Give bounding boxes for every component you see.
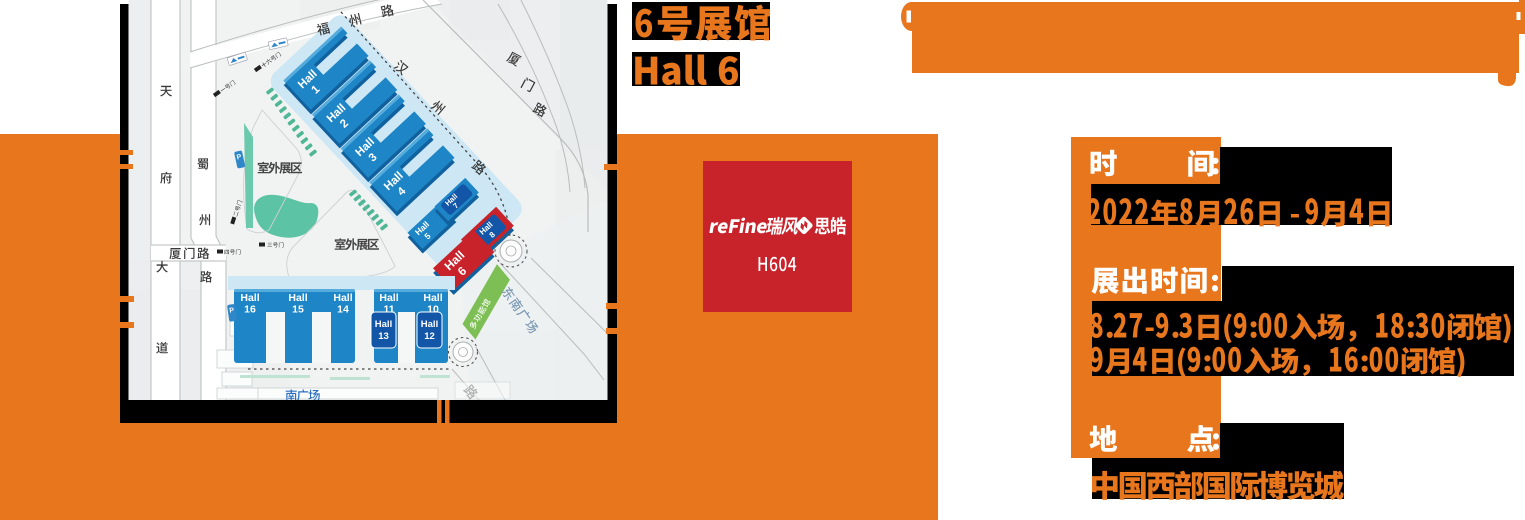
svg-text:Hall: Hall xyxy=(288,292,307,304)
svg-text:Hall: Hall xyxy=(379,292,398,304)
svg-text:Hall: Hall xyxy=(423,292,442,304)
svg-text:16: 16 xyxy=(244,304,256,316)
svg-text:14: 14 xyxy=(337,304,349,316)
svg-text:12: 12 xyxy=(424,331,435,342)
svg-text:15: 15 xyxy=(292,304,304,316)
svg-text:Hall: Hall xyxy=(333,292,352,304)
svg-text:13: 13 xyxy=(378,331,389,342)
svg-text:Hall: Hall xyxy=(375,319,392,330)
svg-text:Hall: Hall xyxy=(240,292,259,304)
svg-text:Hall: Hall xyxy=(421,319,438,330)
